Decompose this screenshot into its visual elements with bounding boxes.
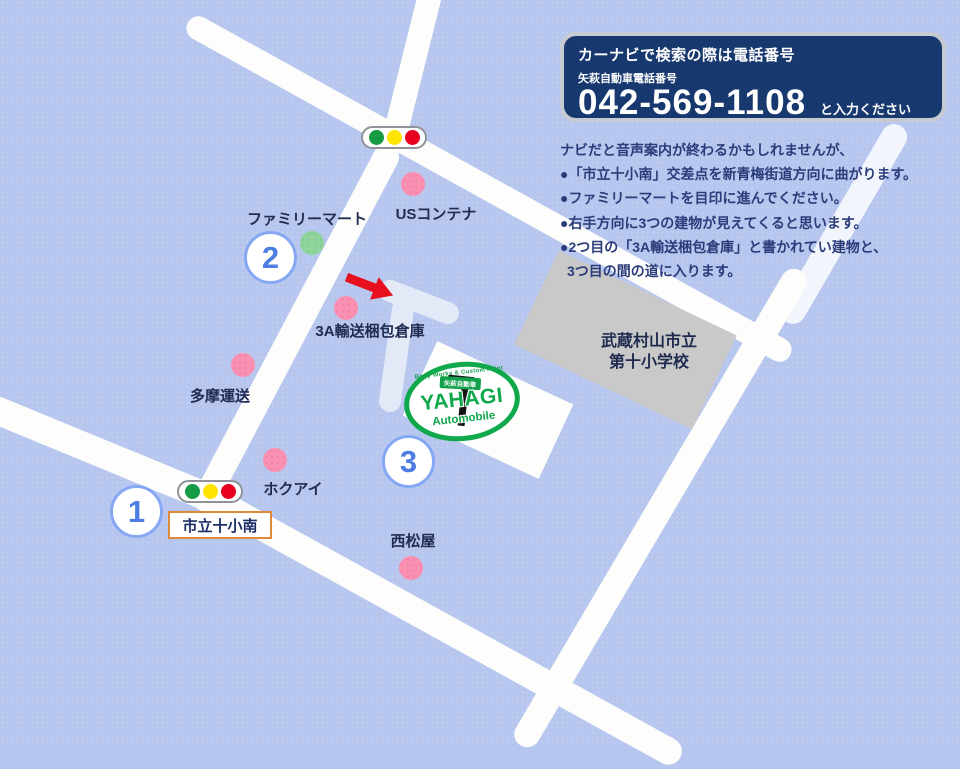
phone-info-box: カーナビで検索の際は電話番号 矢萩自動車電話番号 042-569-1108 と入…	[560, 32, 946, 122]
intersection-name-box: 市立十小南	[168, 511, 272, 539]
instruction-step: ●右手方向に3つの建物が見えてくると思います。	[560, 211, 956, 235]
traffic-light-north-icon	[361, 126, 427, 149]
marker-hokuai	[263, 448, 287, 472]
phone-number: 042-569-1108	[578, 84, 806, 122]
label-nishimatsuya: 西松屋	[390, 530, 435, 551]
green-light-icon	[185, 484, 200, 499]
instruction-step: ●「市立十小南」交差点を新青梅街道方向に曲がります。	[560, 162, 956, 186]
traffic-light-south-icon	[177, 480, 243, 503]
yellow-light-icon	[203, 484, 218, 499]
label-us-container: USコンテナ	[396, 203, 477, 224]
instruction-step: ●ファミリーマートを目印に進んでください。	[560, 186, 956, 210]
label-hokuai: ホクアイ	[263, 478, 322, 499]
marker-3a-warehouse	[334, 296, 358, 320]
yellow-light-icon	[387, 130, 402, 145]
green-light-icon	[369, 130, 384, 145]
red-light-icon	[405, 130, 420, 145]
driving-instructions: ナビだと音声案内が終わるかもしれませんが、 ●「市立十小南」交差点を新青梅街道方…	[560, 138, 956, 283]
label-tama-unsou: 多摩運送	[190, 385, 250, 406]
instruction-intro: ナビだと音声案内が終わるかもしれませんが、	[560, 138, 956, 162]
instruction-step: ●2つ目の「3A輸送梱包倉庫」と書かれてい建物と、	[560, 235, 956, 259]
marker-tama-unsou	[231, 353, 255, 377]
school-name-label: 武蔵村山市立 第十小学校	[601, 331, 697, 373]
waypoint-3: 3	[382, 435, 435, 488]
marker-nishimatsuya	[399, 556, 423, 580]
label-familymart: ファミリーマート	[247, 208, 367, 229]
instruction-step: 3つ目の間の道に入ります。	[560, 259, 956, 283]
yahagi-logo: Body Works & Custom Paint 矢萩自動車 YAHAGI A…	[400, 356, 524, 447]
red-light-icon	[221, 484, 236, 499]
marker-familymart	[300, 231, 324, 255]
waypoint-2: 2	[244, 231, 297, 284]
waypoint-1: 1	[110, 485, 163, 538]
marker-us-container	[401, 172, 425, 196]
label-3a-warehouse: 3A輸送梱包倉庫	[315, 320, 424, 341]
phone-suffix: と入力ください	[820, 99, 911, 118]
route-map: 武蔵村山市立 第十小学校 Body Works & Custom Paint 矢…	[0, 0, 960, 745]
info-title: カーナビで検索の際は電話番号	[578, 44, 928, 65]
